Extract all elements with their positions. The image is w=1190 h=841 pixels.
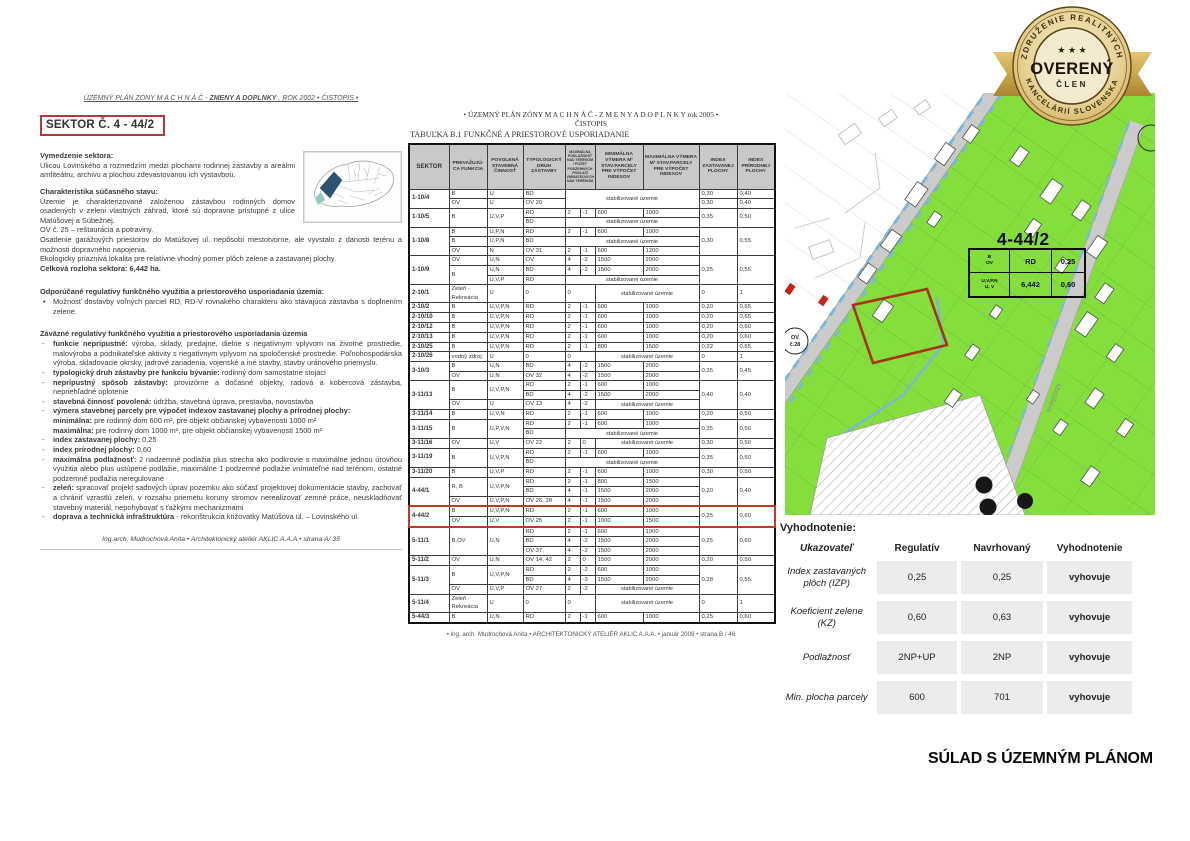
cell: 1500 [643, 517, 699, 527]
cell: 1 [737, 352, 775, 362]
cell: BD [523, 429, 565, 439]
cell: 2 [565, 381, 580, 391]
cell: U,V,P [487, 275, 523, 285]
regulativ-lead: stavebná činnosť povolená: [53, 397, 151, 406]
eval-label: Podlažnosť [780, 641, 873, 674]
cell: RD [523, 227, 565, 237]
cell: RD [523, 467, 565, 477]
cell: 600 [595, 467, 643, 477]
cell: -2 [580, 362, 595, 372]
cell: U,N [487, 362, 523, 372]
cell: 2 [565, 477, 580, 487]
cell: 2 [565, 208, 580, 218]
cell: 600 [595, 322, 643, 332]
cell: OV [449, 371, 487, 381]
info-index-2: 0,60 [1052, 273, 1084, 296]
cell: 600 [595, 208, 643, 218]
cell: B [449, 362, 487, 372]
cell: 0,65 [737, 313, 775, 323]
cell: stabilizované územie [565, 218, 699, 228]
cell: -1 [580, 612, 595, 622]
cell: B [449, 566, 487, 585]
table-row: 2-10/10BU,V,P,NRD2-160010000,200,65 [409, 313, 775, 323]
cell: U [487, 285, 523, 303]
sector-id: 4-44/2 [409, 506, 449, 526]
eval-navrhovany: 701 [961, 681, 1044, 714]
table-row: 2-10/12BU,V,P,NRD2-160010000,200,60 [409, 322, 775, 332]
regulativ-lead: minimálna: [53, 416, 92, 425]
middle-header-line2: ČISTOPIS [408, 119, 774, 128]
eval-label: Koeficient zelene (KZ) [780, 601, 873, 634]
col-max-vymera: MAXIMÁLNA VÝMERA M² STAV.PARCELY PRE VÝP… [643, 144, 699, 190]
eval-row-kz: Koeficient zelene (KZ) 0,60 0,63 vyhovuj… [780, 601, 1132, 634]
regulativ-item: -zeleň: spracovať projekt sadových úprav… [40, 483, 402, 512]
cell: BD [523, 189, 565, 199]
cell: 4 [565, 575, 580, 585]
table-row: 5-11/3BU,V,P,NRD2-260010000,280,55 [409, 566, 775, 576]
cell: RD [523, 506, 565, 516]
cell: U,V,P,N [487, 381, 523, 400]
eval-col-regulativ: Regulatív [877, 543, 956, 554]
cell: B,OV [449, 527, 487, 556]
eval-result: vyhovuje [1047, 561, 1132, 594]
cell: B [449, 208, 487, 227]
cell: 2 [565, 322, 580, 332]
total-area-line: Celková rozloha sektora: 6,442 ha. [40, 264, 402, 274]
cell: OV [449, 400, 487, 410]
cell: B [449, 303, 487, 313]
regulativ-lead: doprava a technická infraštruktúra [53, 512, 174, 521]
cell: -1 [580, 410, 595, 420]
cell: 1000 [643, 566, 699, 576]
cell: stabilizované územie [595, 352, 699, 362]
dash-marker: - [42, 339, 44, 349]
cell: B [449, 227, 487, 237]
cell: 0 [523, 352, 565, 362]
eval-row-izp: Index zastavaných plôch (IZP) 0,25 0,25 … [780, 561, 1132, 594]
eval-row-min-plocha: Min. plocha parcely 600 701 vyhovuje [780, 681, 1132, 714]
cell: -1 [580, 496, 595, 506]
sector-id: 2-10/2 [409, 303, 449, 313]
cell: 0,35 [699, 362, 737, 381]
sector-id: 2-10/1 [409, 285, 449, 303]
cell: 2000 [643, 362, 699, 372]
cell: B [449, 467, 487, 477]
cell: 0,28 [699, 566, 737, 595]
cell: 2000 [643, 546, 699, 556]
regulativ-item: maximálna: pre rodinný dom 1000 m², pre … [40, 426, 402, 436]
cell: U,N [487, 256, 523, 266]
cell: 0,50 [737, 467, 775, 477]
cell: 0 [565, 285, 595, 303]
cell: OV [449, 517, 487, 527]
cell: 2 [565, 410, 580, 420]
cell: 0,60 [737, 332, 775, 342]
sector-id: 2-10/12 [409, 322, 449, 332]
cell: 600 [595, 448, 643, 458]
sector-group-4-44/2: 4-44/2BU,V,P,NRD2-160010000,250,60OVU,VO… [409, 506, 775, 526]
sector-group-5-11/3: 5-11/3BU,V,P,NRD2-260010000,280,55BD4-31… [409, 566, 775, 595]
cell: 600 [595, 566, 643, 576]
cell: RD [523, 410, 565, 420]
cell: 0 [580, 556, 595, 566]
cell: 2 [565, 585, 580, 595]
cell: -2 [580, 371, 595, 381]
cell: 1500 [595, 390, 643, 400]
cell: 600 [595, 303, 643, 313]
dash-marker: - [42, 445, 44, 455]
bullet-dot: • [43, 297, 46, 307]
cell: U,V,P,N [487, 332, 523, 342]
cell: 0,30 [699, 438, 737, 448]
cell: 1000 [643, 410, 699, 420]
cell: 4 [565, 390, 580, 400]
cell: -2 [580, 390, 595, 400]
cell: B [449, 410, 487, 420]
col-podlaznost: MAXIMÁLNA PODLAŽNOSŤ NAD TERÉNOM / POČET… [565, 144, 595, 190]
cell: -1 [580, 448, 595, 458]
cell: U [487, 199, 523, 209]
cell: OV [449, 199, 487, 209]
cell: -1 [580, 487, 595, 497]
cell: RD [523, 322, 565, 332]
eval-navrhovany: 0,63 [961, 601, 1044, 634]
sector-group-3-11/16: 3-11/16OVU,VOV 2220stabilizované územie0… [409, 438, 775, 448]
cell: 0,40 [737, 381, 775, 410]
cell: RD [523, 342, 565, 352]
cell: stabilizované územie [565, 237, 699, 247]
sector-id: 4-44/1 [409, 477, 449, 506]
cell: -1 [580, 477, 595, 487]
eval-result: vyhovuje [1047, 641, 1132, 674]
cell: 1000 [643, 303, 699, 313]
col-min-vymera: MINIMÁLNA VÝMERA M² STAV.PARCELY PRE VÝP… [595, 144, 643, 190]
cell: 2 [565, 556, 580, 566]
sector-group-3-11/14: 3-11/14BU,V,NRD2-160010000,200,50 [409, 410, 775, 420]
cell: 1500 [595, 546, 643, 556]
cell: BD [523, 487, 565, 497]
left-page-rule [40, 549, 402, 550]
cell: stabilizované územie [595, 585, 699, 595]
cell: B [449, 506, 487, 516]
odporucane-bullet: •Možnosť dostavby voľných parciel RD, RD… [40, 297, 402, 316]
sector-group-5-11/1: 5-11/1B,OVU,NRD2-160010000,250,60BD4-215… [409, 527, 775, 556]
cell: BD [523, 458, 565, 468]
cell: 0,20 [699, 313, 737, 323]
sector-group-5-44/3: 5-44/3BU,NRD2-160010000,250,60 [409, 612, 775, 622]
cell: 0,30 [699, 199, 737, 209]
cell: U,V,P,N [487, 496, 523, 506]
middle-page-header: • ÚZEMNÝ PLÁN ZÓNY M A C H N Á Č - Z M E… [408, 110, 774, 129]
cell: U,P,N [487, 227, 523, 237]
sector-id: 5-11/1 [409, 527, 449, 556]
cell: -1 [580, 517, 595, 527]
cell: 0 [523, 285, 565, 303]
cell: 1000 [643, 419, 699, 429]
cell: RD [523, 303, 565, 313]
sector-group-1-10/4: 1-10/4BUBDstabilizované územie0,300,40OV… [409, 189, 775, 208]
cell: RD [523, 419, 565, 429]
cell: 800 [595, 342, 643, 352]
table-row: 2-10/2BU,V,P,NRD2-160010000,200,65 [409, 303, 775, 313]
cell: stabilizované územie [595, 438, 699, 448]
sector-group-4-44/1: 4-44/1R, BU,V,P,NRD2-180015000,200,40BD4… [409, 477, 775, 506]
cell: U,V,P,N [487, 448, 523, 467]
cell: 600 [595, 332, 643, 342]
sector-group-5-11/2: 5-11/2OVU,NOV 14, 4220150020000,200,50 [409, 556, 775, 566]
evaluation-table: Ukazovateľ Regulatív Navrhovaný Vyhodnot… [776, 536, 1136, 721]
regulativ-item: minimálna: pre rodinný dom 600 m², pre o… [40, 416, 402, 426]
cell: U,V,P,N [487, 506, 523, 516]
table-row: 3-11/13BU,V,P,NRD2-160010000,400,40 [409, 381, 775, 391]
cell: 2 [565, 246, 580, 256]
cell: RD [523, 527, 565, 537]
badge-sub-text: ČLEN [1056, 80, 1088, 89]
cell: -1 [580, 246, 595, 256]
cell: 0,60 [737, 612, 775, 622]
sector-id: 1-10/5 [409, 208, 449, 227]
cell: 1 [737, 285, 775, 303]
eval-label: Index zastavaných plôch (IZP) [780, 561, 873, 594]
cell: 0,50 [737, 419, 775, 438]
cell: 0,50 [737, 438, 775, 448]
eval-row-podlaznost: Podlažnosť 2NP+UP 2NP vyhovuje [780, 641, 1132, 674]
eval-navrhovany: 2NP [961, 641, 1044, 674]
sector-group-3-11/20: 3-11/20BU,V,PRD2-160010000,300,50 [409, 467, 775, 477]
cell: 0,25 [699, 506, 737, 526]
regulativ-item: -typologický druh zástavby pre funkciu b… [40, 368, 402, 378]
evaluation-title: Vyhodnotenie: [780, 522, 1136, 534]
sector-id: 2-10/13 [409, 332, 449, 342]
cell: 0,50 [737, 556, 775, 566]
sector-id: 3-11/14 [409, 410, 449, 420]
eval-col-vyhodnotenie: Vyhodnotenie [1047, 543, 1132, 554]
cell: RD [523, 275, 565, 285]
sector-id: 5-11/3 [409, 566, 449, 595]
eval-col-navrhovany: Navrhovaný [961, 543, 1044, 554]
cell: 2 [565, 313, 580, 323]
cell: B [449, 313, 487, 323]
cell: U,V [487, 438, 523, 448]
cell: B [449, 237, 487, 247]
sector-thumbnail-map [303, 151, 402, 223]
cell: U,V,P,N [487, 322, 523, 332]
sector-group-2-10/12: 2-10/12BU,V,P,NRD2-160010000,200,60 [409, 322, 775, 332]
cell: 4 [565, 256, 580, 266]
cell: BD [523, 537, 565, 547]
table-row: 3-10/3BU,NBD4-2150020000,350,45 [409, 362, 775, 372]
dash-marker: - [42, 397, 44, 407]
dash-marker: - [42, 455, 44, 465]
regulativ-lead: zeleň: [53, 483, 74, 492]
cell: RD [523, 208, 565, 218]
badge-stars: ★ ★ ★ [1057, 45, 1086, 55]
cell: 2 [565, 566, 580, 576]
info-index-1: 0,25 [1052, 250, 1084, 273]
cell: 0 [699, 352, 737, 362]
cell: vodný zdroj [449, 352, 487, 362]
cell: U,N [487, 527, 523, 556]
table-row: 1-10/9OVU,NOV4-2150020000,250,55 [409, 256, 775, 266]
cell: 0 [565, 594, 595, 612]
cell: B [449, 419, 487, 438]
cell: -1 [580, 527, 595, 537]
cell: 0,35 [699, 208, 737, 227]
cell: OV [449, 438, 487, 448]
cell: 0,20 [699, 477, 737, 506]
sector-id: 5-44/3 [409, 612, 449, 622]
cell: 1500 [595, 537, 643, 547]
cell: 1500 [595, 371, 643, 381]
sector-id: 3-10/3 [409, 362, 449, 381]
cell: RD [523, 381, 565, 391]
regulativ-item: -index prírodnej plochy: 0,60 [40, 445, 402, 455]
cell: 0,35 [699, 448, 737, 467]
col-sektor: SEKTOR [409, 144, 449, 190]
cell: 0,65 [737, 303, 775, 313]
cell: 600 [595, 612, 643, 622]
cell: -1 [580, 208, 595, 218]
table-row: 2-10/26vodný zdrojU00stabilizované územi… [409, 352, 775, 362]
cell: OV 22 [523, 438, 565, 448]
cell: U,V,P,N [487, 566, 523, 585]
sector-id: 3-11/16 [409, 438, 449, 448]
cell: -1 [580, 419, 595, 429]
cell: 2000 [643, 496, 699, 506]
cell: 600 [595, 506, 643, 516]
eval-label: Min. plocha parcely [780, 681, 873, 714]
cell: 0,60 [737, 527, 775, 556]
cell: RD [523, 448, 565, 458]
cell: B [449, 332, 487, 342]
cell: 600 [595, 313, 643, 323]
col-druh: TYPOLOGICKÝ DRUH ZÁSTAVBY [523, 144, 565, 190]
sector-group-1-10/8: 1-10/8BU,P,NRD2-160010000,300,55BU,P,NBD… [409, 227, 775, 256]
sector-id: 3-11/20 [409, 467, 449, 477]
cell: 2 [565, 342, 580, 352]
cell: 2000 [643, 487, 699, 497]
sector-group-2-10/25: 2-10/25BU,V,P,NRD2-180015000,220,65 [409, 342, 775, 352]
cell: 1200 [643, 246, 699, 256]
cell: 0,55 [737, 566, 775, 595]
table-row: 4-44/2BU,V,P,NRD2-160010000,250,60 [409, 506, 775, 516]
cell: OV 32 [523, 371, 565, 381]
cell: 1500 [595, 256, 643, 266]
cell: U,V,P,N [487, 303, 523, 313]
cell: OV 25 [523, 517, 565, 527]
table-title: TABUĽKA B.1 FUNKČNÉ A PRIESTOROVÉ USPORI… [410, 130, 774, 139]
sector-group-2-10/2: 2-10/2BU,V,P,NRD2-160010000,200,65 [409, 303, 775, 313]
cell: 2000 [643, 556, 699, 566]
cell: U,N [487, 371, 523, 381]
eval-regulativ: 0,25 [877, 561, 956, 594]
cell: 2 [565, 438, 580, 448]
cell: stabilizované územie [595, 594, 699, 612]
table-row: 3-11/16OVU,VOV 2220stabilizované územie0… [409, 438, 775, 448]
cell: -1 [580, 467, 595, 477]
cell: -1 [580, 506, 595, 516]
cell: 0 [699, 285, 737, 303]
eval-result: vyhovuje [1047, 681, 1132, 714]
regulativ-item: -index zastavanej plochy: 0,25 [40, 435, 402, 445]
cell: -1 [580, 322, 595, 332]
cell: 0,40 [737, 199, 775, 209]
sector-title-box: SEKTOR Č. 4 - 44/2 [40, 115, 165, 136]
cell: B [449, 322, 487, 332]
sector-group-2-10/26: 2-10/26vodný zdrojU00stabilizované územi… [409, 352, 775, 362]
cell: 0,50 [737, 410, 775, 420]
sector-id: 1-10/4 [409, 189, 449, 208]
eval-regulativ: 600 [877, 681, 956, 714]
cell: 1000 [643, 527, 699, 537]
info-funkcia-2: U,V,P,N U, V [970, 273, 1010, 296]
cell: RD [523, 313, 565, 323]
sector-id: 3-11/15 [409, 419, 449, 438]
cell: U [487, 594, 523, 612]
odporucane-bullet-text: Možnosť dostavby voľných parciel RD, RD-… [53, 297, 402, 316]
col-index-zastavanej: INDEX ZASTAVANEJ PLOCHY [699, 144, 737, 190]
table-row: 3-11/19BU,V,P,NRD2-160010000,350,50 [409, 448, 775, 458]
table-row: 2-10/13BU,V,P,NRD2-160010000,200,60 [409, 332, 775, 342]
cell: 2 [565, 332, 580, 342]
cell: 2000 [643, 371, 699, 381]
cell: 1500 [643, 477, 699, 487]
cell: stabilizované územie [565, 275, 699, 285]
cell: RD [523, 477, 565, 487]
cell: -3 [580, 575, 595, 585]
cell: 0,20 [699, 303, 737, 313]
cell: 0,55 [737, 227, 775, 256]
verified-member-badge: ZDRUŽENIE REALITNÝCH KANCELÁRIÍ SLOVENSK… [985, 2, 1160, 130]
cell: 1 [737, 594, 775, 612]
cell: OV 31 [523, 246, 565, 256]
sector-id: 3-11/19 [409, 448, 449, 467]
cell: B [449, 448, 487, 467]
cell: 1000 [643, 313, 699, 323]
zoning-map-svg: Matúšova [785, 93, 1155, 515]
sector-id: 1-10/8 [409, 227, 449, 256]
regulativ-lead: index zastavanej plochy: [53, 435, 140, 444]
cell: 1000 [643, 322, 699, 332]
cell: BD [523, 362, 565, 372]
sector-group-5-11/4: 5-11/4Zeleň - RekreáciaU00stabilizované … [409, 594, 775, 612]
cell: 0,20 [699, 556, 737, 566]
cell: BD [523, 266, 565, 276]
sector-id: 5-11/2 [409, 556, 449, 566]
cell: OV [449, 585, 487, 595]
cell: OV 37, [523, 546, 565, 556]
cell: 0,35 [699, 419, 737, 438]
map-info-box: B OV RD 0,25 U,V,P,N U, V 6,442 0,60 [968, 248, 1086, 298]
cell: -1 [580, 332, 595, 342]
cell: stabilizované územie [595, 285, 699, 303]
zoning-map: Matúšova [785, 93, 1155, 515]
cell: stabilizované územie [565, 429, 699, 439]
cell: OV 13 [523, 400, 565, 410]
cell: Zeleň - Rekreácia [449, 285, 487, 303]
cell: 1000 [643, 612, 699, 622]
cell: 0,40 [699, 381, 737, 410]
cell: 0 [580, 438, 595, 448]
cell: OV 27 [523, 585, 565, 595]
odporucane-heading: Odporúčané regulatívy funkčného využitia… [40, 287, 402, 297]
cell: 1000 [643, 208, 699, 218]
cell: 1500 [595, 362, 643, 372]
cell: U,V,P,N [487, 313, 523, 323]
cell: -2 [580, 566, 595, 576]
cell: 1500 [595, 556, 643, 566]
map-sector-label: 4-44/2 [997, 229, 1050, 249]
